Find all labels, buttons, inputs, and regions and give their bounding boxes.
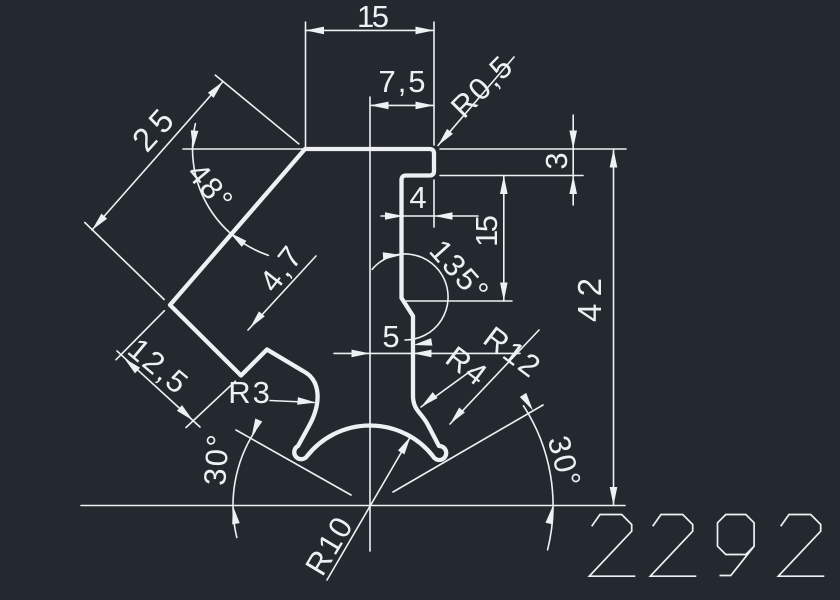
svg-text:5: 5 [382, 319, 399, 354]
svg-text:R3: R3 [228, 375, 272, 410]
svg-text:15: 15 [469, 213, 504, 247]
svg-text:15: 15 [357, 0, 391, 34]
svg-text:30°: 30° [197, 431, 236, 486]
svg-text:7,5: 7,5 [378, 64, 427, 99]
svg-text:4: 4 [409, 180, 426, 215]
svg-text:3: 3 [539, 152, 574, 169]
